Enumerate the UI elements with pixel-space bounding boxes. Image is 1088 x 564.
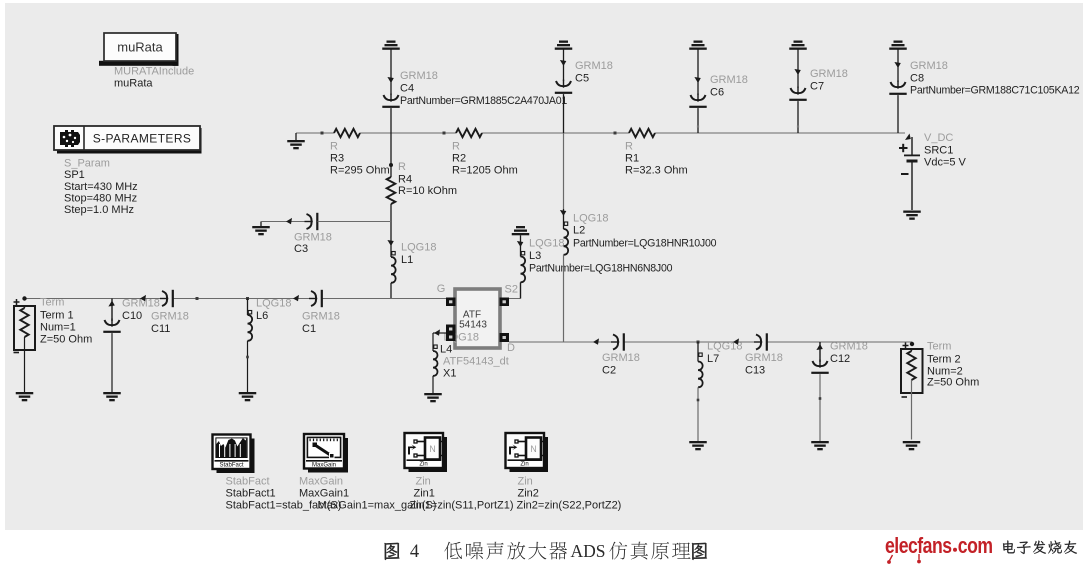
svg-text:L2: L2: [573, 225, 585, 237]
svg-text:ATF54143_dt: ATF54143_dt: [443, 356, 509, 368]
svg-text:ADS: ADS: [570, 541, 605, 561]
svg-text:R4: R4: [398, 174, 412, 186]
svg-text:L4: L4: [440, 344, 452, 356]
svg-text:C1: C1: [302, 323, 316, 335]
svg-text:GRM18: GRM18: [910, 60, 948, 72]
svg-text:C11: C11: [151, 323, 170, 335]
svg-text:C2: C2: [602, 365, 616, 377]
svg-text:R=295 Ohm: R=295 Ohm: [330, 165, 390, 177]
svg-text:GRM18: GRM18: [302, 311, 340, 323]
svg-text:Step=1.0 MHz: Step=1.0 MHz: [64, 204, 134, 216]
svg-text:MURATAInclude: MURATAInclude: [114, 66, 194, 78]
svg-text:GRM18: GRM18: [294, 232, 332, 244]
svg-text:Zin2=zin(S22,PortZ2): Zin2=zin(S22,PortZ2): [517, 500, 622, 512]
svg-text:54143: 54143: [459, 320, 487, 331]
svg-text:Zin: Zin: [416, 476, 431, 488]
svg-text:StabFact: StabFact: [219, 462, 243, 468]
svg-text:L7: L7: [707, 353, 719, 365]
svg-text:L6: L6: [256, 310, 268, 322]
svg-text:SRC1: SRC1: [924, 145, 953, 157]
svg-text:PartNumber=GRM1885C2A470JA01: PartNumber=GRM1885C2A470JA01: [400, 95, 567, 107]
svg-text:R: R: [398, 161, 406, 173]
svg-text:C13: C13: [745, 365, 765, 377]
svg-text:Zin1=zin(S11,PortZ1): Zin1=zin(S11,PortZ1): [410, 500, 514, 512]
svg-text:GRM18: GRM18: [710, 74, 748, 86]
svg-text:Zin: Zin: [520, 462, 528, 468]
svg-text:R: R: [452, 141, 460, 153]
svg-text:muRata: muRata: [114, 78, 153, 90]
svg-text:GRM18: GRM18: [400, 70, 438, 82]
svg-text:R3: R3: [330, 153, 344, 165]
svg-text:C7: C7: [810, 81, 824, 93]
svg-text:L1: L1: [401, 254, 413, 266]
svg-text:D: D: [507, 342, 515, 354]
svg-text:C4: C4: [400, 83, 414, 95]
svg-text:Vdc=5 V: Vdc=5 V: [924, 157, 967, 169]
svg-text:GRM18: GRM18: [575, 60, 613, 72]
svg-text:C3: C3: [294, 243, 308, 255]
svg-text:R2: R2: [452, 153, 466, 165]
svg-text:GRM18: GRM18: [602, 352, 640, 364]
svg-text:GRM18: GRM18: [810, 68, 848, 80]
svg-text:N: N: [530, 444, 536, 454]
svg-text:C10: C10: [122, 310, 142, 322]
svg-text:Term 2: Term 2: [927, 354, 961, 366]
svg-text:Term 1: Term 1: [40, 310, 74, 322]
svg-text:R=10 kOhm: R=10 kOhm: [398, 185, 457, 197]
svg-text:Num=1: Num=1: [40, 322, 76, 334]
svg-text:C5: C5: [575, 73, 589, 85]
svg-text:4: 4: [410, 542, 419, 562]
svg-text:LQG18: LQG18: [573, 213, 608, 225]
svg-text:N: N: [429, 444, 435, 454]
svg-text:C12: C12: [830, 353, 850, 365]
svg-text:Zin1: Zin1: [414, 488, 435, 500]
svg-text:Z=50 Ohm: Z=50 Ohm: [927, 377, 979, 389]
svg-text:L3: L3: [529, 250, 541, 262]
svg-text:MaxGain: MaxGain: [312, 462, 336, 468]
svg-text:Z=50 Ohm: Z=50 Ohm: [40, 334, 92, 346]
svg-text:C8: C8: [910, 73, 924, 85]
svg-text:R=32.3 Ohm: R=32.3 Ohm: [625, 165, 688, 177]
svg-text:Term: Term: [927, 341, 951, 353]
svg-text:SP1: SP1: [64, 169, 85, 181]
svg-text:muRata: muRata: [117, 40, 163, 55]
svg-text:LQG18: LQG18: [401, 242, 436, 254]
svg-text:StabFact: StabFact: [226, 476, 270, 488]
svg-text:MaxGain: MaxGain: [299, 476, 343, 488]
svg-text:Term: Term: [40, 297, 64, 309]
svg-text:PartNumber=LQG18HN6N8J00: PartNumber=LQG18HN6N8J00: [529, 263, 673, 275]
svg-text:R: R: [330, 141, 338, 153]
svg-text:StabFact1: StabFact1: [226, 488, 276, 500]
svg-text:Zin: Zin: [419, 462, 427, 468]
svg-text:C6: C6: [710, 87, 724, 99]
svg-text:R: R: [625, 141, 633, 153]
svg-text:MaxGain1: MaxGain1: [299, 488, 349, 500]
svg-text:GRM18: GRM18: [745, 352, 783, 364]
svg-text:GRM18: GRM18: [151, 311, 189, 323]
svg-text:S_Param: S_Param: [64, 158, 110, 170]
svg-text:LQG18: LQG18: [529, 238, 564, 250]
svg-text:Zin2: Zin2: [518, 488, 539, 500]
svg-text:Zin: Zin: [518, 476, 533, 488]
svg-text:GRM18: GRM18: [830, 341, 868, 353]
svg-text:Start=430 MHz: Start=430 MHz: [64, 181, 138, 193]
svg-text:PartNumber=GRM188C71C105KA12: PartNumber=GRM188C71C105KA12: [910, 85, 1080, 97]
svg-text:com: com: [958, 534, 993, 558]
svg-text:R1: R1: [625, 153, 639, 165]
svg-text:GRM18: GRM18: [122, 298, 160, 310]
svg-text:G: G: [437, 283, 446, 295]
svg-text:X1: X1: [443, 368, 456, 380]
svg-text:S-PARAMETERS: S-PARAMETERS: [93, 132, 192, 146]
svg-text:PartNumber=LQG18HNR10J00: PartNumber=LQG18HNR10J00: [573, 238, 717, 250]
svg-text:V_DC: V_DC: [924, 132, 953, 144]
svg-text:Stop=480 MHz: Stop=480 MHz: [64, 193, 137, 205]
svg-text:R=1205 Ohm: R=1205 Ohm: [452, 165, 518, 177]
svg-text:S2: S2: [505, 284, 518, 296]
svg-text:LQG18: LQG18: [256, 298, 291, 310]
